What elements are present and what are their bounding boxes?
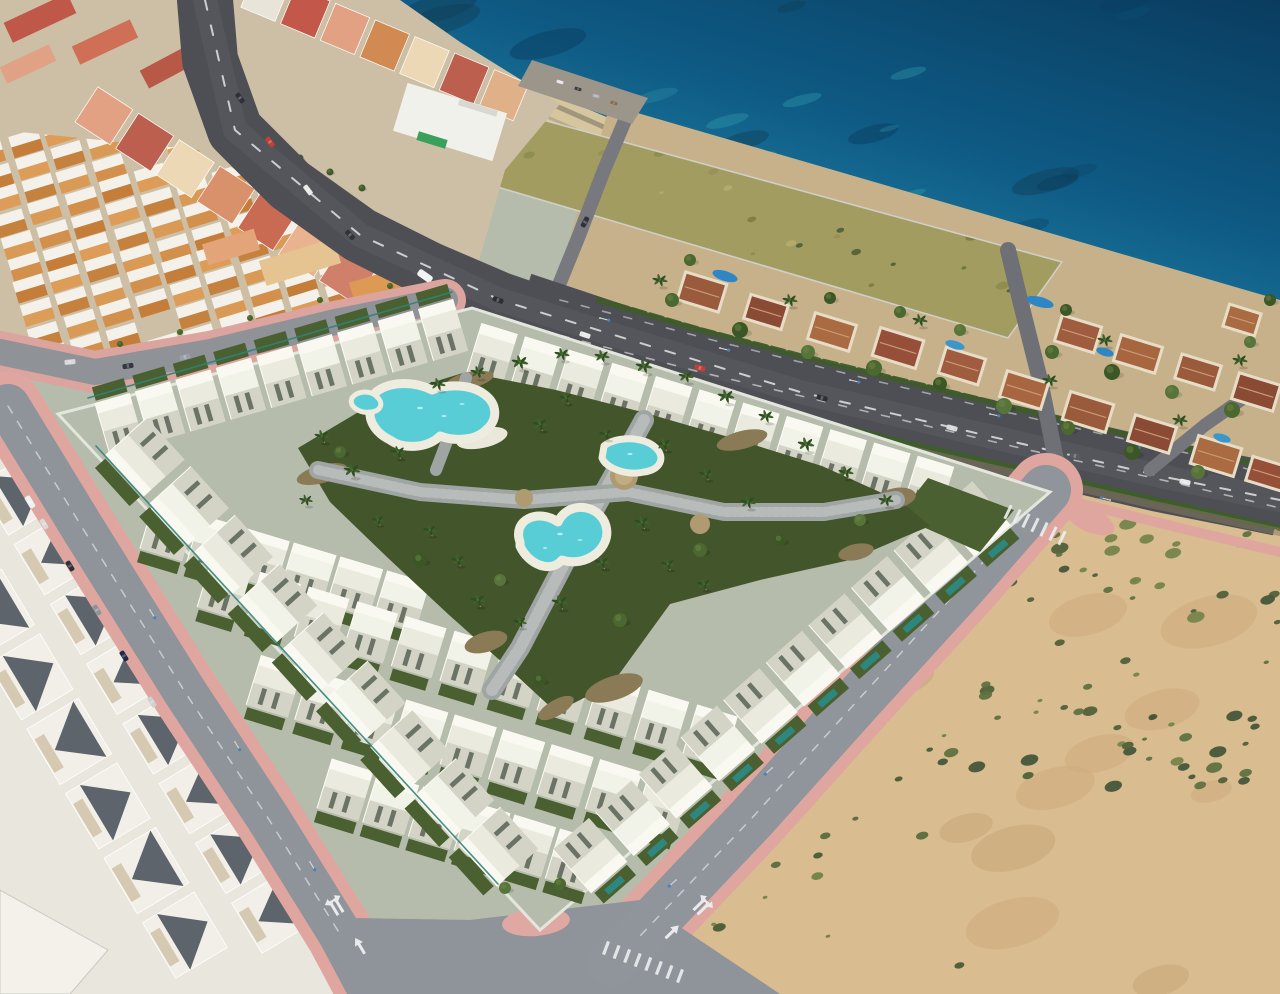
pool-medium — [602, 439, 661, 473]
pool-kidney-small — [351, 392, 381, 412]
scene-svg — [0, 0, 1280, 994]
aerial-development-photo — [0, 0, 1280, 994]
pool-heart — [519, 507, 607, 566]
pool-large — [370, 384, 495, 447]
